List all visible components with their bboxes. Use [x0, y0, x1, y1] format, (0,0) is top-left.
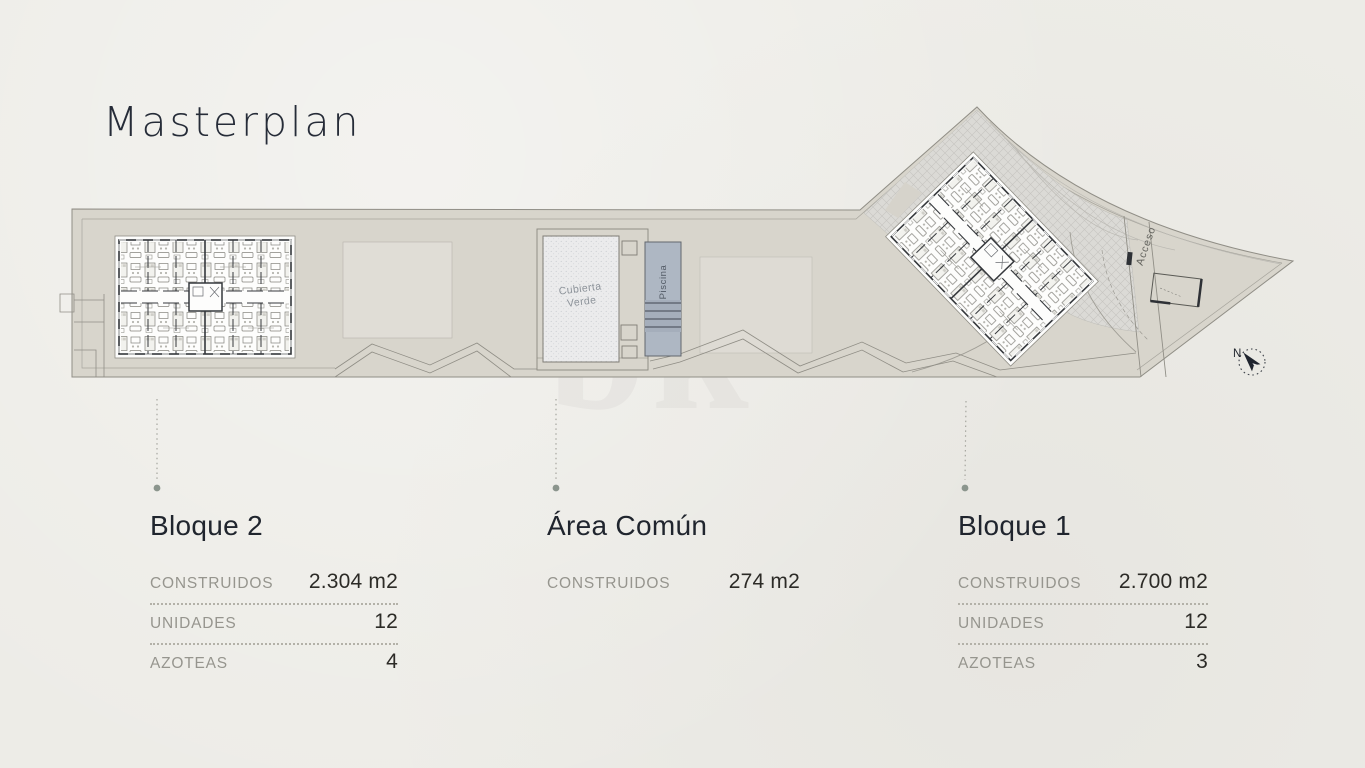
legend-row-unidades: UNIDADES 12	[150, 605, 398, 643]
legend-heading: Área Común	[547, 509, 800, 543]
leader-lines	[157, 399, 966, 480]
legend-row-construidos: CONSTRUIDOS 2.700 m2	[958, 565, 1208, 603]
legend-row-value: 274 m2	[729, 570, 800, 594]
legend-column-bloque-2: Bloque 2 CONSTRUIDOS 2.304 m2 UNIDADES 1…	[150, 509, 398, 683]
legend-row-azoteas: AZOTEAS 4	[150, 645, 398, 683]
legend-row-label: AZOTEAS	[958, 655, 1036, 673]
legend-row-label: CONSTRUIDOS	[547, 575, 670, 593]
legend-row-value: 2.304 m2	[309, 570, 398, 594]
legend-row-label: CONSTRUIDOS	[150, 575, 273, 593]
pool: Piscina	[645, 242, 681, 356]
leader-dot-area-comun	[553, 485, 560, 492]
masterplan-slide: Masterplan bk	[0, 0, 1365, 768]
leader-dot-bloque-1	[962, 485, 969, 492]
pool-label: Piscina	[658, 264, 669, 299]
north-label: N	[1233, 348, 1241, 360]
leader-dots	[154, 485, 969, 492]
bloque-2-plan	[115, 236, 295, 358]
leader-dot-bloque-2	[154, 485, 161, 492]
legend-row-value: 3	[1196, 650, 1208, 674]
legend-row-value: 2.700 m2	[1119, 570, 1208, 594]
legend-column-area-comun: Área Común CONSTRUIDOS 274 m2	[547, 509, 800, 603]
legend-row-azoteas: AZOTEAS 3	[958, 645, 1208, 683]
north-compass: N	[1233, 348, 1265, 375]
legend-row-label: CONSTRUIDOS	[958, 575, 1081, 593]
legend-row-unidades: UNIDADES 12	[958, 605, 1208, 643]
legend-heading: Bloque 2	[150, 509, 398, 543]
legend-heading: Bloque 1	[958, 509, 1208, 543]
legend-row-label: UNIDADES	[958, 615, 1045, 633]
legend-row-label: UNIDADES	[150, 615, 237, 633]
legend-row-construidos: CONSTRUIDOS 274 m2	[547, 565, 800, 603]
legend-column-bloque-1: Bloque 1 CONSTRUIDOS 2.700 m2 UNIDADES 1…	[958, 509, 1208, 683]
green-roof: Cubierta Verde	[537, 229, 648, 370]
legend-row-value: 12	[374, 610, 398, 634]
legend-row-value: 12	[1184, 610, 1208, 634]
compass-needle-icon	[1239, 349, 1260, 371]
site-plan-drawing: Cubierta Verde Piscina Acceso N	[0, 0, 1365, 500]
legend-row-label: AZOTEAS	[150, 655, 228, 673]
legend-row-value: 4	[386, 650, 398, 674]
legend-row-construidos: CONSTRUIDOS 2.304 m2	[150, 565, 398, 603]
paved-area-left	[343, 242, 452, 338]
leader-line-bloque-1	[965, 401, 966, 480]
